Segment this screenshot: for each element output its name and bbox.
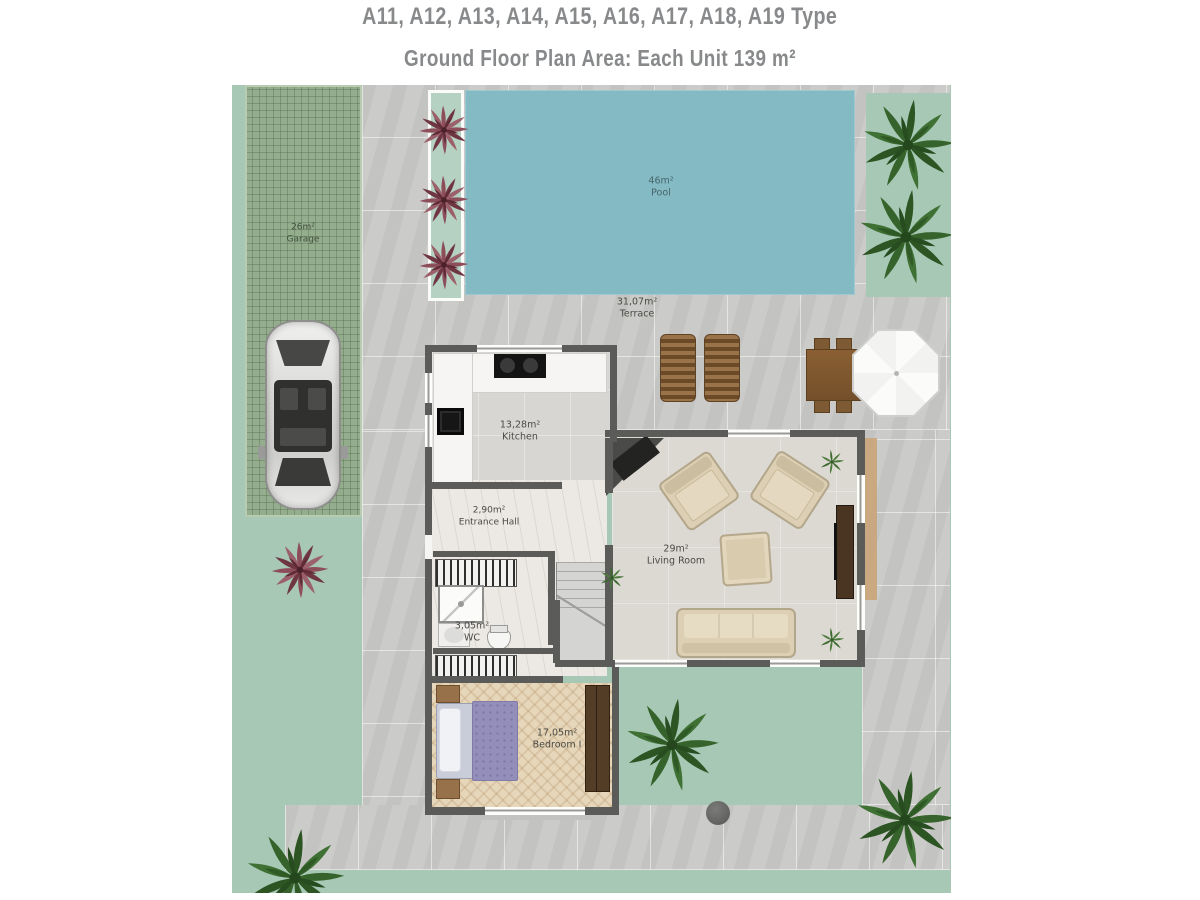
entrance-door [425,535,432,559]
bed-blanket [472,701,518,781]
wall [610,345,617,442]
pool-label: 46m²Pool [648,176,673,201]
terrace-label: 31,07m²Terrace [617,297,657,322]
window-sill [477,815,593,820]
bedroom-wardrobe [585,685,610,792]
window [770,660,820,667]
dining-chair [836,399,852,413]
palm-tree-icon [619,692,725,798]
wall [857,430,865,667]
garage-label: 26m²Garage [287,222,320,245]
bed-pillow [439,708,461,772]
nightstand [436,685,460,703]
palm-tree-icon [852,183,951,291]
kitchen-sink [437,408,464,435]
cooktop-icon [494,354,546,378]
floor-plan: 26m²Garage 46m²Pool 31,07m²Terrace 13,28… [232,85,951,893]
car-rear-window [276,340,330,366]
tv-unit [836,505,854,599]
kitchen-label: 13,28m²Kitchen [500,420,540,445]
wall [612,660,619,815]
bedroom-label: 17,05m²Bedroom I [533,728,582,753]
shrub-icon [706,801,730,825]
houseplant-icon [817,447,847,477]
window [615,660,687,667]
patio-umbrella-icon [852,329,940,417]
wall [605,438,613,493]
shower [438,585,484,623]
car-seat [280,388,298,410]
sun-lounger [660,334,696,402]
car-sunroof [274,380,332,452]
window [857,475,865,523]
car-seat [280,428,326,446]
umbrella-canopy [854,331,938,415]
sofa-cushions [684,614,788,638]
window [425,415,432,447]
wall [433,648,555,654]
wall [425,676,563,683]
nightstand [436,779,460,799]
gravel-strip [865,438,877,600]
sun-lounger [704,334,740,402]
red-flower-plant-icon [411,232,477,298]
side-paving-left [362,430,425,870]
burner [523,358,538,373]
car-windshield [275,458,331,486]
window [485,807,585,815]
car-mirror [341,446,348,459]
red-flower-plant-icon [262,532,338,608]
burner [500,358,515,373]
coffee-ottoman [719,531,773,586]
living-room-label: 29m²Living Room [647,544,705,569]
wardrobe-closet [435,559,517,587]
sofa-back [682,643,790,653]
sofa [676,608,796,658]
palm-tree-icon [239,822,351,893]
wall [430,482,562,489]
car-mirror [258,446,265,459]
wc-label: 3,05m²WC [455,621,489,646]
window [425,373,432,403]
red-flower-plant-icon [411,167,477,233]
car-top-view [260,318,346,512]
houseplant-icon [597,563,627,593]
wall [548,551,555,645]
red-flower-plant-icon [411,97,477,163]
plan-type-title: A11, A12, A13, A14, A15, A16, A17, A18, … [0,3,1200,31]
palm-tree-icon [849,764,951,876]
window [728,430,790,437]
car-seat [308,388,326,410]
entrance-hall-label: 2,90m²Entrance Hall [459,505,519,528]
window [477,345,562,352]
wardrobe-closet [435,655,517,677]
window [857,585,865,630]
floor-plan-page: A11, A12, A13, A14, A15, A16, A17, A18, … [0,0,1200,900]
wall [433,551,555,557]
plan-area-subtitle: Ground Floor Plan Area: Each Unit 139 m² [0,45,1200,72]
dining-chair [814,399,830,413]
palm-tree-icon [856,93,951,197]
houseplant-icon [817,625,847,655]
